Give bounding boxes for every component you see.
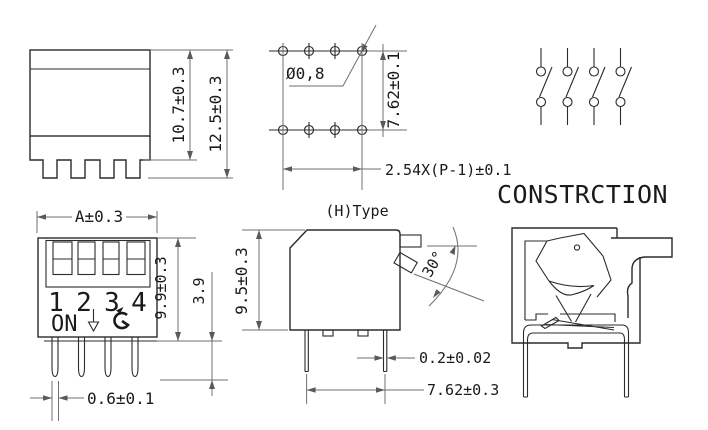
dip-switch-drawing: 10.7±0.3 12.5±0.3 Ø0,8 2.54X(P-1)±0.1: [0, 0, 708, 430]
front-pins: [52, 337, 138, 377]
h-body-outline: [290, 230, 400, 330]
switch-symbol-1: [537, 48, 553, 125]
technical-drawing-sheet: 10.7±0.3 12.5±0.3 Ø0,8 2.54X(P-1)±0.1: [0, 0, 708, 430]
side-height-inner-dim: 10.7±0.3: [169, 66, 188, 143]
width-dim: A±0.3: [75, 207, 123, 226]
construction-view: [512, 228, 672, 397]
h-height-dim: 9.5±0.3: [232, 247, 251, 314]
lever-outline: [611, 228, 672, 318]
switch-symbol-4: [616, 48, 632, 125]
hole-diameter-dim: Ø0,8: [286, 64, 325, 83]
h-lever-angled: [394, 253, 417, 273]
number-4: 4: [131, 288, 147, 318]
h-dimensions: 30° 9.5±0.3 0.2±0.02 7.62±0.3: [232, 227, 499, 404]
pcb-holes: [279, 43, 367, 138]
side-body-outline: [30, 50, 150, 136]
circuit-schematic: [537, 48, 632, 125]
inner-wall: [525, 241, 547, 320]
h-lever-up: [400, 235, 421, 247]
body-height-dim: 9.9±0.3: [152, 256, 170, 319]
rocker-mechanism: [536, 234, 611, 323]
row-pitch-dim: 7.62±0.1: [384, 51, 403, 128]
lever-angle-dim: 30°: [418, 248, 447, 280]
side-pin-comb: [30, 136, 150, 178]
on-label: ON: [51, 312, 78, 337]
pcb-dimensions: Ø0,8 2.54X(P-1)±0.1 7.62±0.1: [283, 25, 511, 190]
side-height-total-dim: 12.5±0.3: [206, 75, 225, 152]
pcb-row-lines: [269, 51, 376, 130]
base-and-contacts: [524, 314, 629, 397]
switch-symbol-3: [590, 48, 606, 125]
side-view: 10.7±0.3 12.5±0.3: [30, 50, 233, 178]
switch-slots: [53, 242, 145, 275]
angle-lever-line: [414, 274, 484, 301]
switch-symbol-2: [563, 48, 579, 125]
housing-outline: [512, 228, 640, 348]
pin-thickness-dim: 0.2±0.02: [419, 349, 491, 367]
h-pins: [305, 330, 387, 372]
front-view: 1 2 3 4 ON A±0.3: [30, 207, 228, 421]
pivot-hole: [574, 245, 579, 250]
contact-flag: [542, 318, 560, 329]
number-2: 2: [76, 288, 92, 318]
construction-title: CONSTRCTION: [497, 180, 668, 209]
pin-length-dim: 3.9: [190, 277, 208, 304]
left-terminal-pin: [524, 325, 534, 397]
pcb-top-view: Ø0,8 2.54X(P-1)±0.1 7.62±0.1: [269, 25, 511, 190]
pin-width-dim: 0.6±0.1: [87, 389, 154, 408]
side-dimensions: 10.7±0.3 12.5±0.3: [143, 50, 233, 178]
front-recess: [46, 241, 150, 288]
pin-pitch-dim: 2.54X(P-1)±0.1: [385, 161, 511, 179]
right-terminal-pin: [620, 325, 629, 397]
h-type-label: (H)Type: [325, 202, 388, 220]
h-type-view: (H)Type 30° 9.5±0.3 0.2±0.02: [232, 202, 499, 404]
pin-span-dim: 7.62±0.3: [427, 381, 499, 399]
